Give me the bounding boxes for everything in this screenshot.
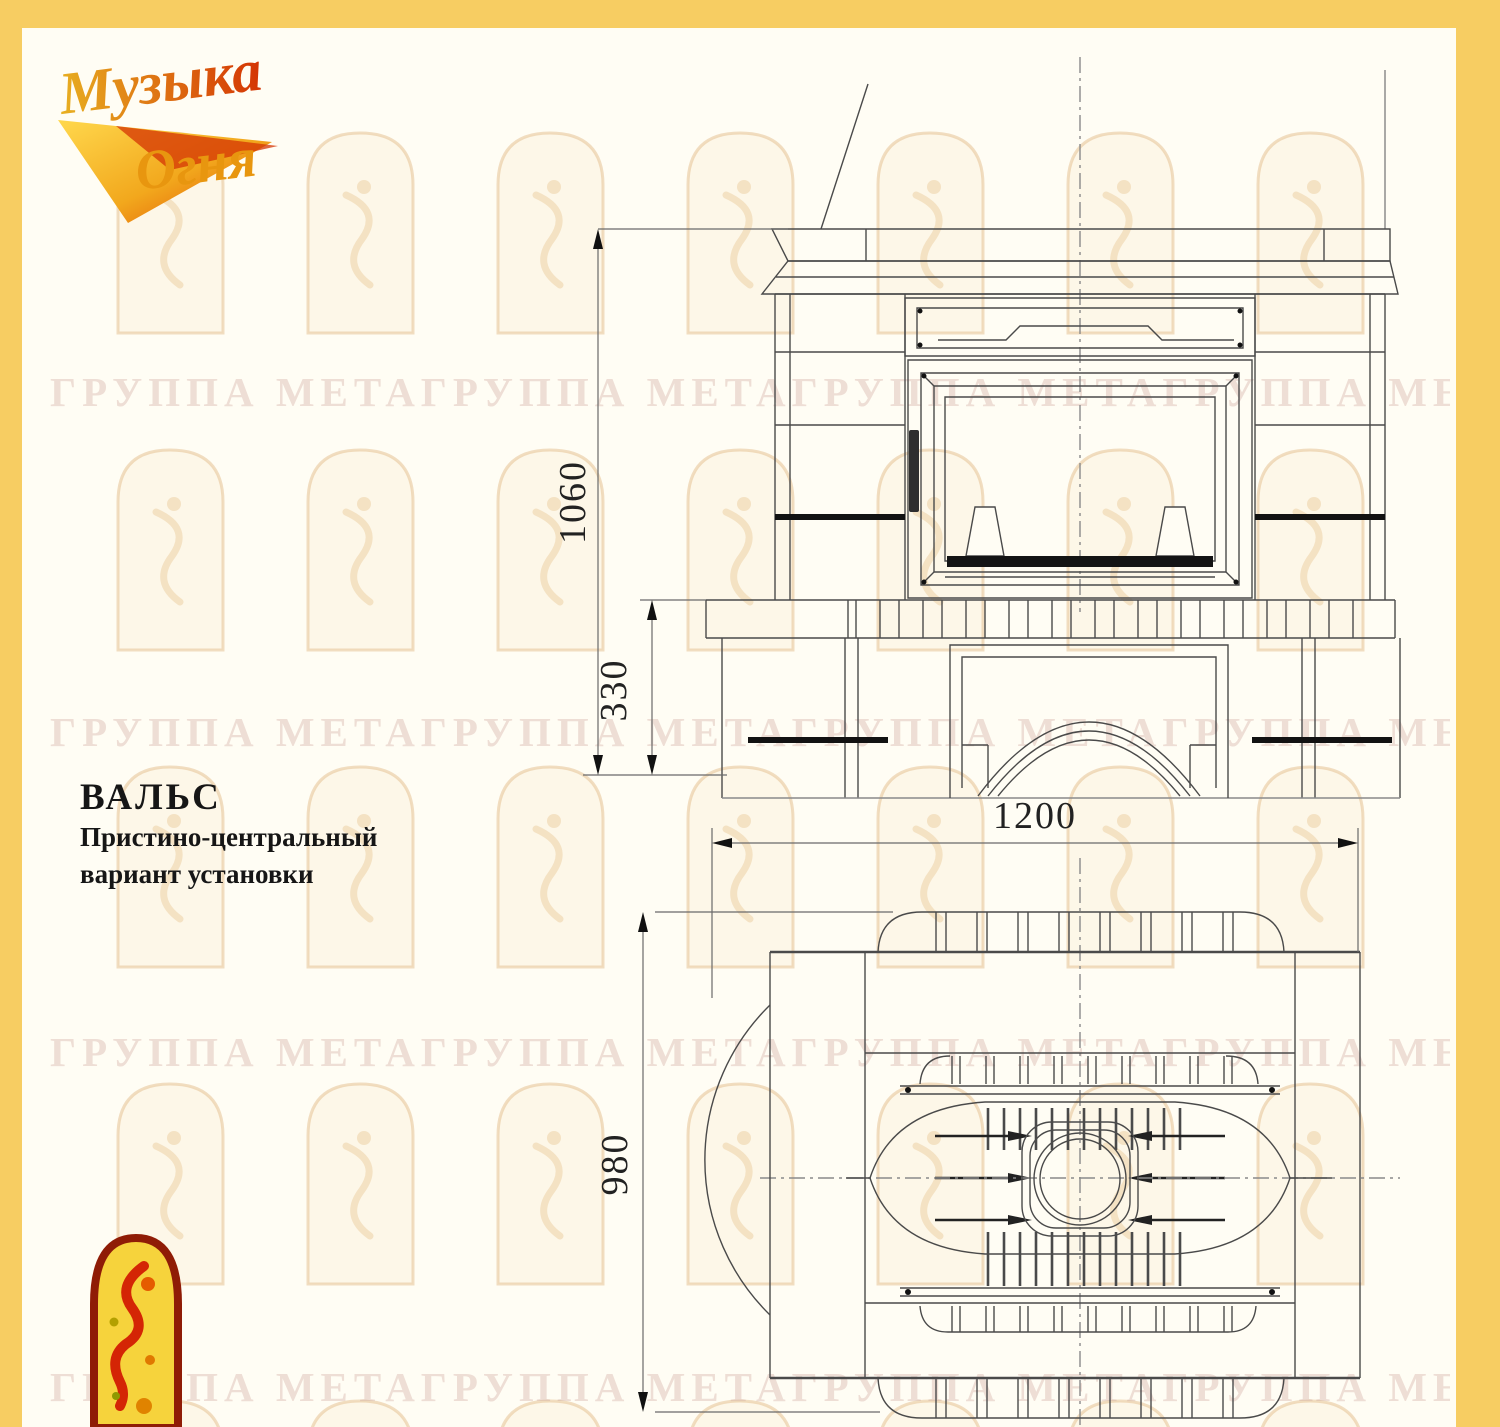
firebird-emblem: [86, 1228, 186, 1427]
wall-clearance-arc: [705, 1005, 770, 1315]
andiron-left: [966, 507, 1004, 556]
technical-drawing: 1060 330 1200 980: [0, 0, 1500, 1427]
plan-view: [705, 858, 1400, 1427]
front-view: [706, 57, 1400, 798]
andiron-right: [1156, 507, 1194, 556]
door-handle: [909, 430, 919, 512]
dim-depth: 980: [594, 1133, 636, 1196]
drawing-sheet: ГРУППА МЕТАГРУППА МЕТАГРУППА МЕТАГРУППА …: [0, 0, 1500, 1427]
flue-leader-line: [821, 84, 868, 229]
grate-bar: [947, 556, 1213, 567]
dim-hearth-height: 330: [593, 659, 635, 722]
dim-width: 1200: [993, 795, 1077, 837]
dimensions: 1060 330 1200 980: [552, 229, 1358, 1412]
niche-arch: [978, 722, 1200, 796]
dim-total-height: 1060: [552, 460, 594, 544]
